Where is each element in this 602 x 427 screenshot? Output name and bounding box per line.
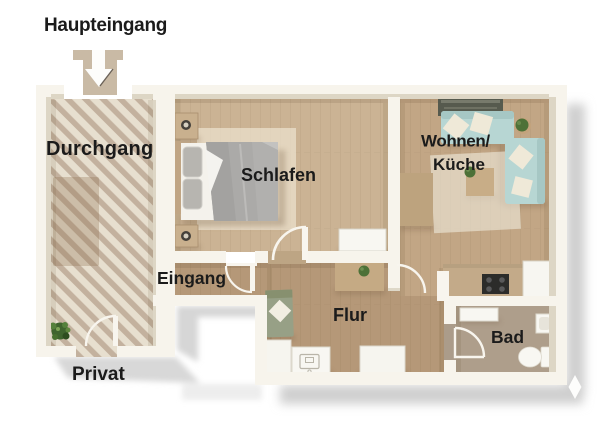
svg-text:Eingang: Eingang bbox=[157, 268, 226, 288]
svg-text:Wohnen/: Wohnen/ bbox=[421, 132, 490, 151]
svg-text:Durchgang: Durchgang bbox=[46, 138, 153, 160]
svg-text:Schlafen: Schlafen bbox=[241, 165, 316, 185]
svg-text:Bad: Bad bbox=[491, 327, 524, 347]
svg-text:Haupteingang: Haupteingang bbox=[44, 15, 167, 36]
svg-text:Privat: Privat bbox=[72, 364, 125, 385]
svg-text:Flur: Flur bbox=[333, 305, 367, 325]
svg-text:Küche: Küche bbox=[433, 155, 485, 174]
